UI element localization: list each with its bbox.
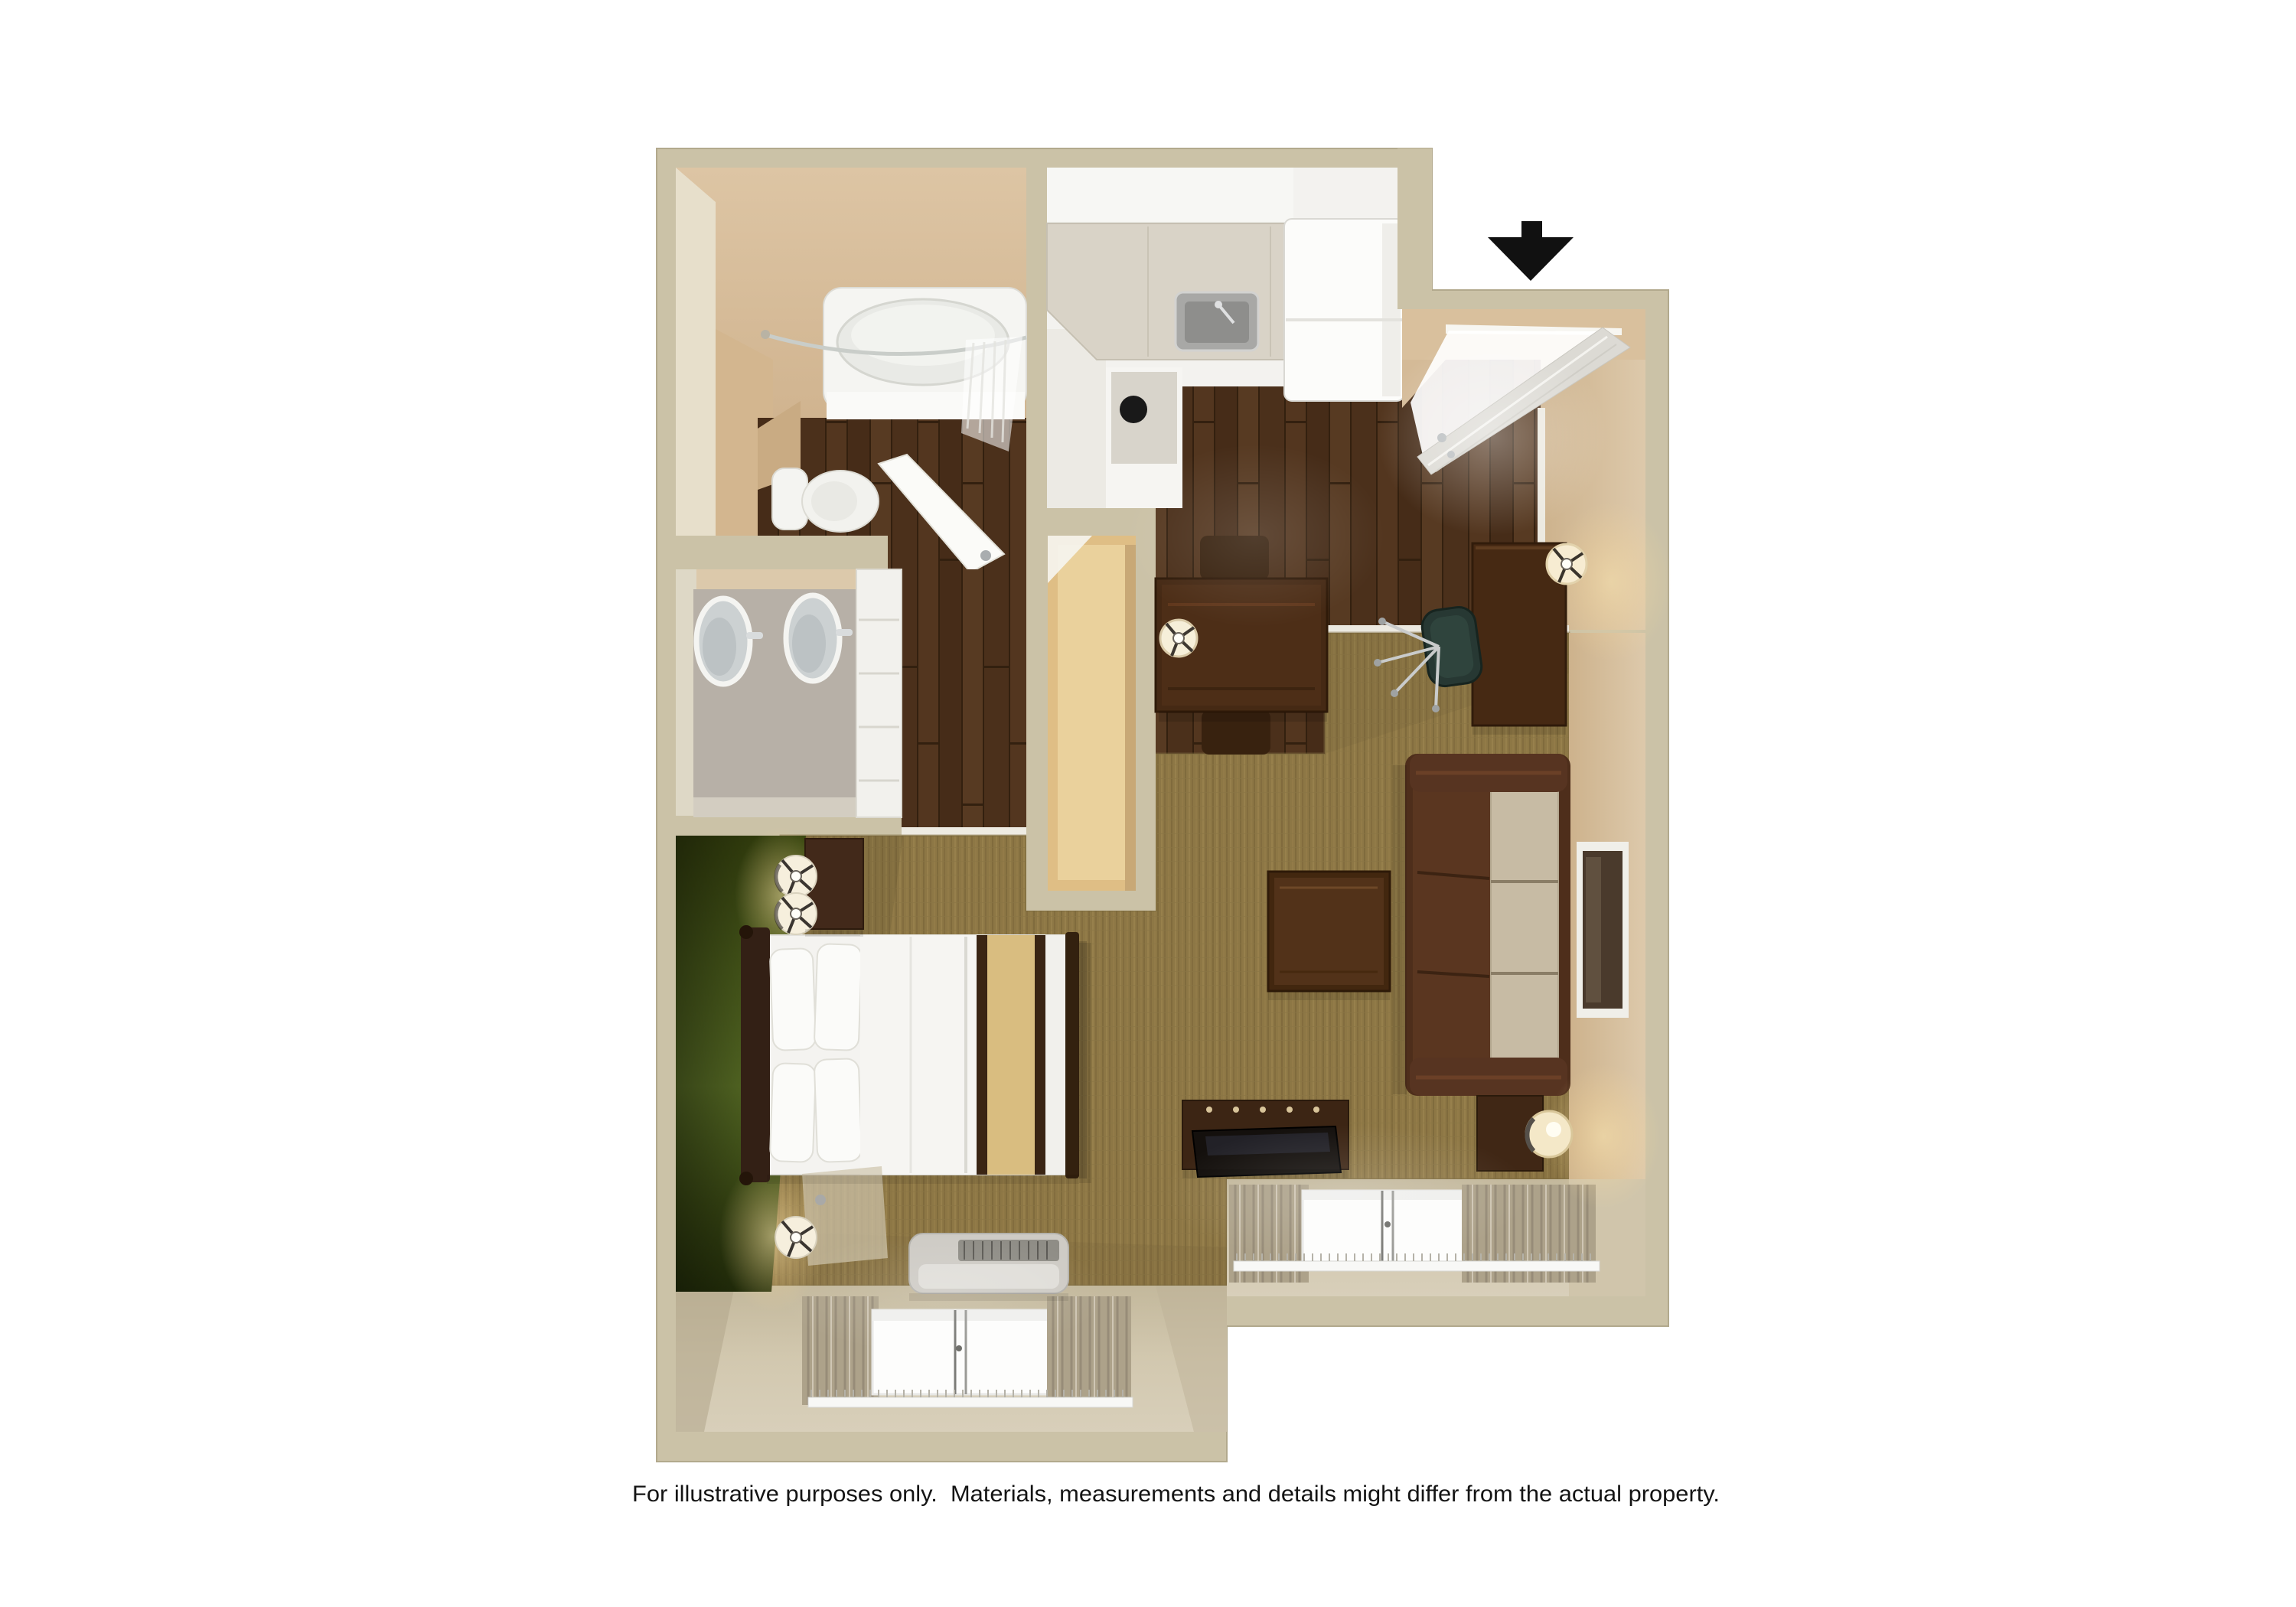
svg-text:For illustrative purposes only: For illustrative purposes only. Material… [632, 1482, 1720, 1507]
